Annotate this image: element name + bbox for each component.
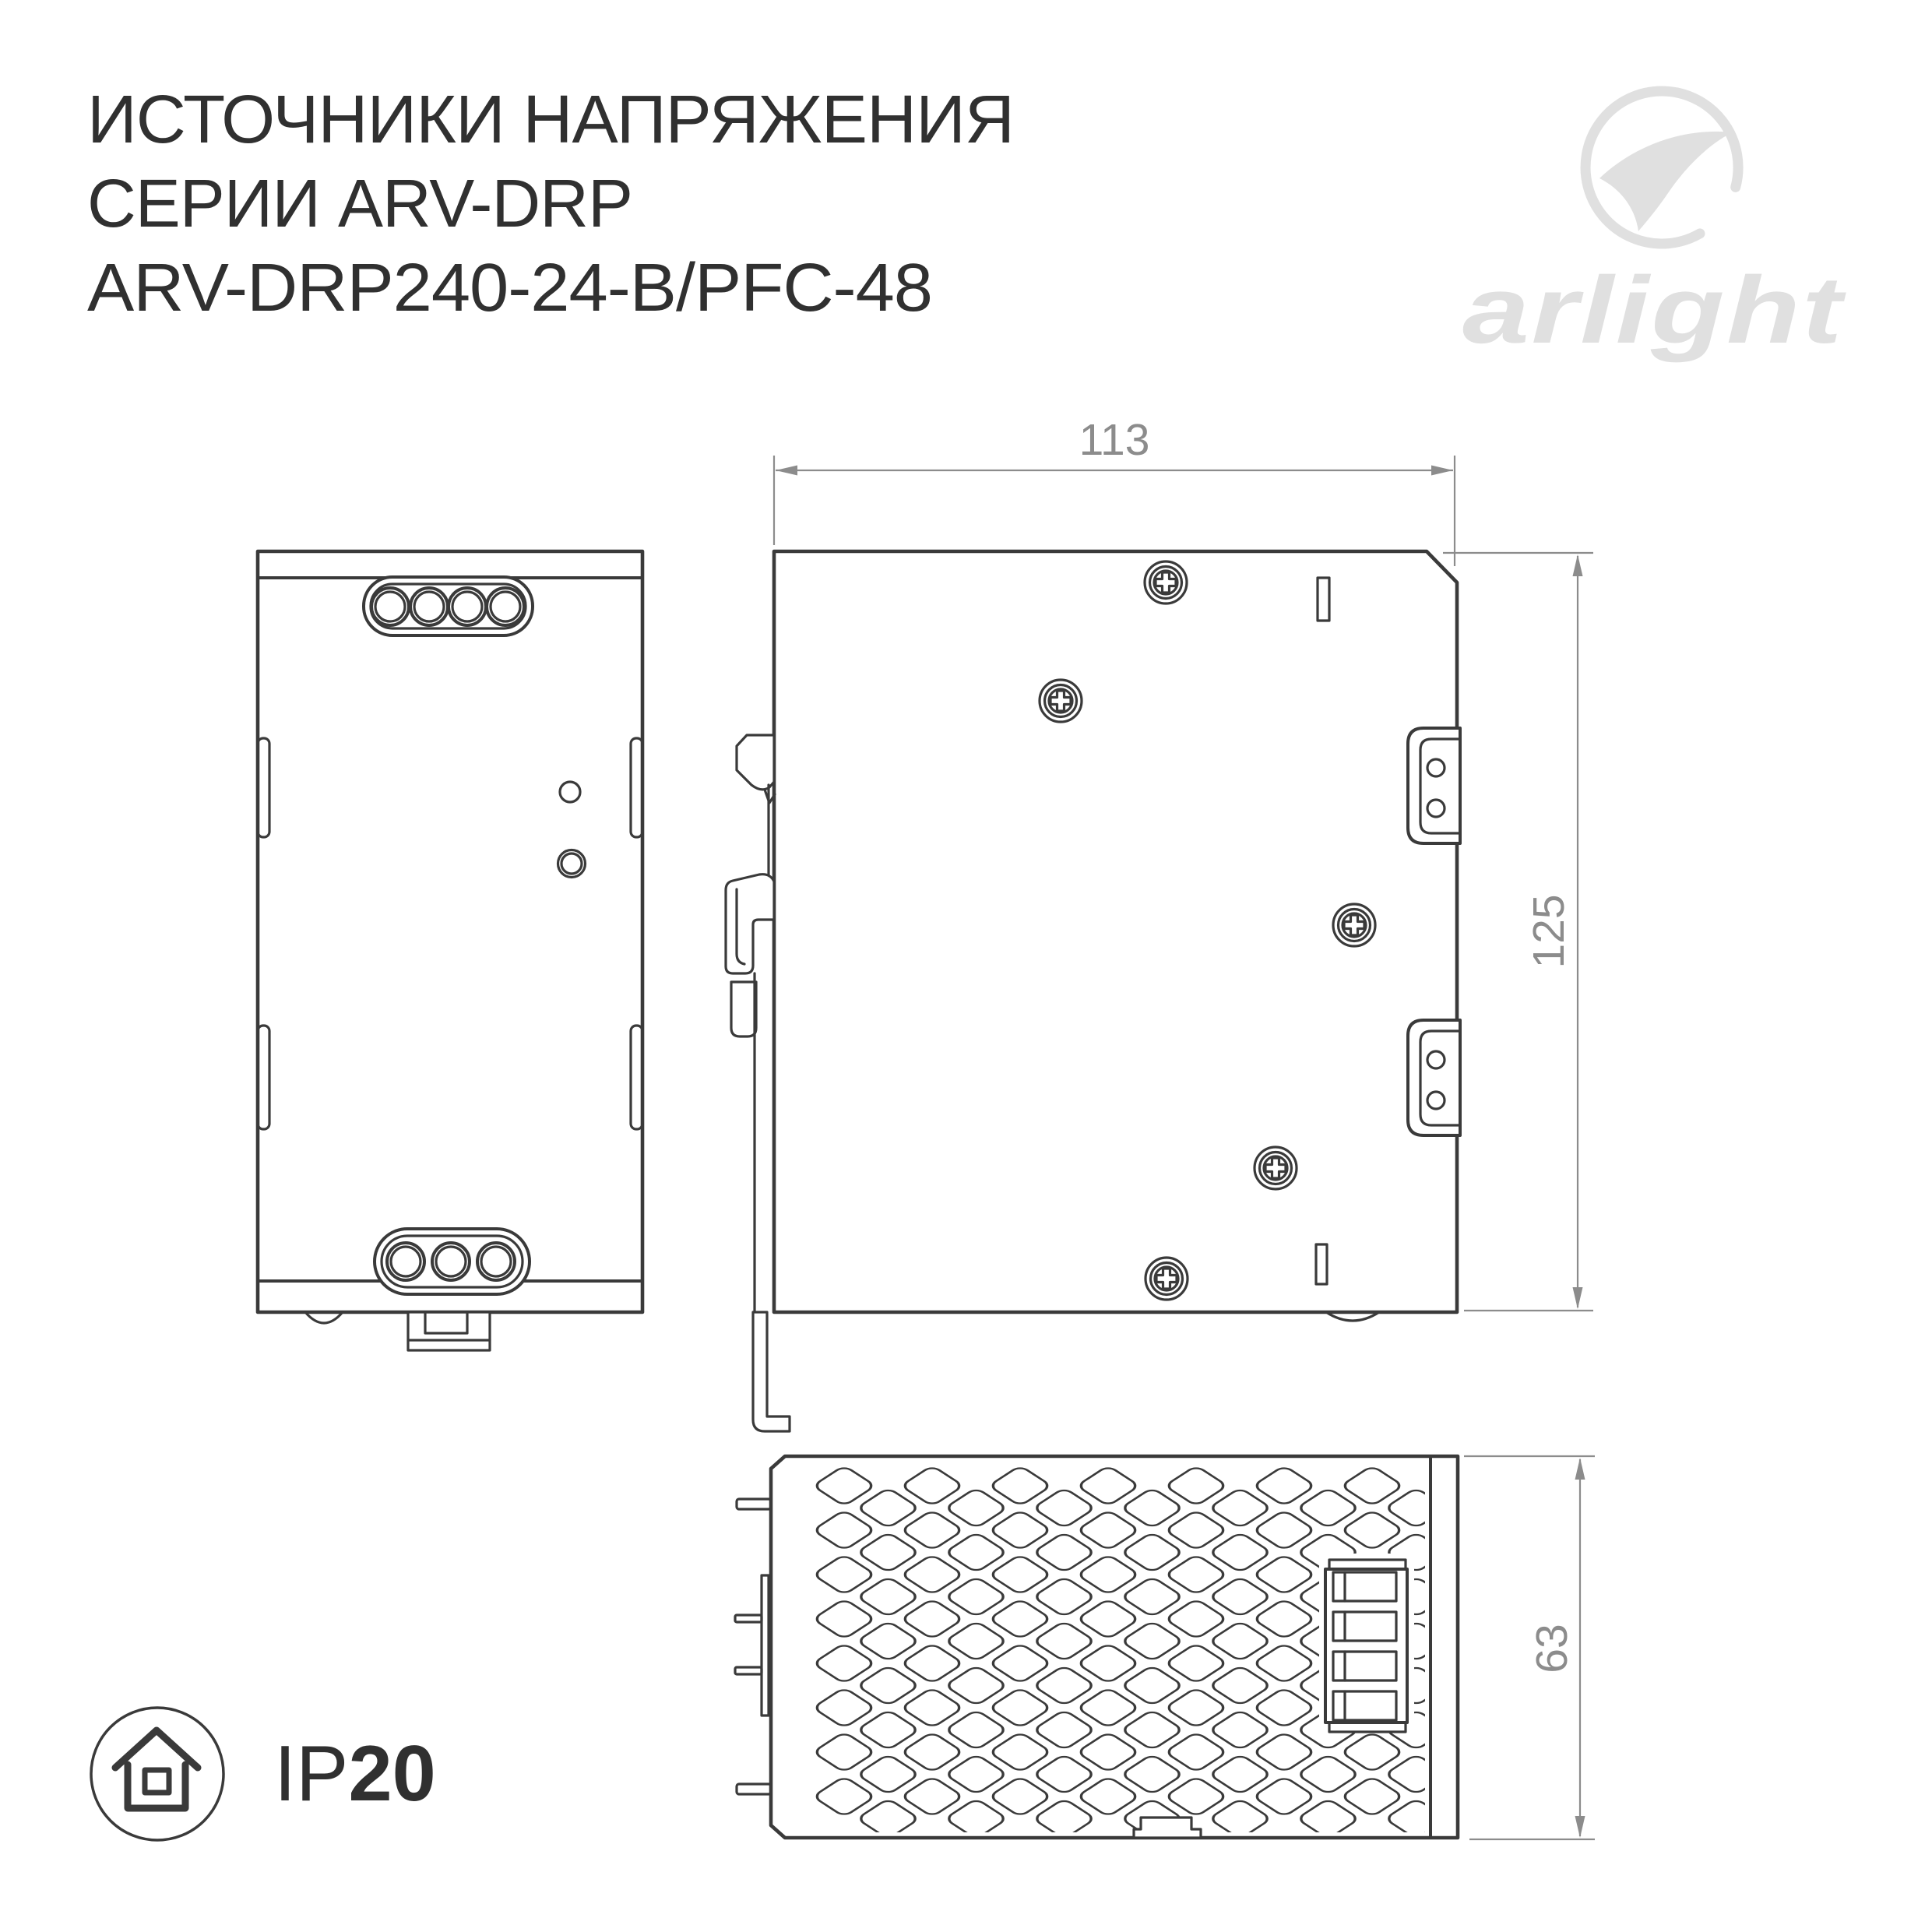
din-latch [726, 875, 774, 973]
ip-rating-badge: IP20 [91, 1708, 436, 1840]
vent-hole [1165, 1776, 1227, 1817]
vent-hole [1033, 1487, 1095, 1528]
vent-hole [989, 1643, 1051, 1684]
vent-hole [1121, 1621, 1183, 1661]
terminal-hole [387, 1243, 515, 1280]
vent-hole [1077, 1554, 1139, 1595]
clip-tab [735, 1615, 762, 1622]
vent-hole [901, 1776, 963, 1817]
vent-hole [1341, 1466, 1403, 1506]
vent-hole [1341, 1776, 1403, 1817]
screw-icon [1255, 1147, 1297, 1189]
vent-hole [945, 1532, 1007, 1572]
vent-hole [1121, 1665, 1183, 1705]
vent-hole [901, 1466, 963, 1506]
arrow-left-icon [776, 466, 797, 476]
vent-hole [1297, 1487, 1359, 1528]
vent-hole [1209, 1709, 1271, 1750]
vent-hole [1253, 1466, 1315, 1506]
vent-hole [1253, 1599, 1315, 1639]
screw-icon [1145, 561, 1187, 604]
datasheet-page: ИСТОЧНИКИ НАПРЯЖЕНИЯ СЕРИИ ARV-DRP ARV-D… [0, 0, 1932, 1932]
vent-hole [945, 1576, 1007, 1617]
vent-hole [1033, 1709, 1095, 1750]
vent-hole [1209, 1754, 1271, 1794]
front-view [258, 551, 642, 1350]
dimension-label-width: 113 [1079, 415, 1150, 465]
vent-hole [1209, 1665, 1271, 1705]
vent-hole [1165, 1510, 1227, 1550]
vent-hole [1253, 1510, 1315, 1550]
vent-hole [989, 1599, 1051, 1639]
vent-hole [989, 1554, 1051, 1595]
bottom-view [735, 1456, 1458, 1839]
vent-hole [1121, 1487, 1183, 1528]
vent-hole [901, 1554, 963, 1595]
vent-hole [901, 1510, 963, 1550]
vent-hole [1297, 1754, 1359, 1794]
terminal-block [1325, 1560, 1407, 1732]
vent-hole [813, 1776, 875, 1817]
dimension-label-depth: 63 [1527, 1624, 1577, 1673]
vent-hole [813, 1732, 875, 1772]
vent-hole [857, 1754, 919, 1794]
clip-tab [737, 1499, 771, 1509]
vent-hole [1209, 1576, 1271, 1617]
arrow-up-icon [1573, 554, 1583, 576]
title-block: ИСТОЧНИКИ НАПРЯЖЕНИЯ СЕРИИ ARV-DRP ARV-D… [87, 82, 1014, 326]
arrow-down-icon [1575, 1816, 1585, 1838]
vent-hole [813, 1554, 875, 1595]
din-hook-lower [753, 1312, 790, 1431]
vent-hole [1033, 1532, 1095, 1572]
ip-rating-text: IP20 [274, 1730, 436, 1818]
vent-hole [1341, 1510, 1403, 1550]
vent-hole [945, 1665, 1007, 1705]
title-line-1: ИСТОЧНИКИ НАПРЯЖЕНИЯ [87, 82, 1014, 157]
vent-hole [1253, 1554, 1315, 1595]
technical-drawing: ИСТОЧНИКИ НАПРЯЖЕНИЯ СЕРИИ ARV-DRP ARV-D… [0, 0, 1932, 1932]
logo-wordmark: arlight [1462, 257, 1846, 363]
vent-hole [1033, 1621, 1095, 1661]
vent-hole [1385, 1487, 1447, 1528]
dimension-height-125: 125 [1443, 553, 1593, 1311]
vent-hole [1033, 1665, 1095, 1705]
vent-hole [945, 1621, 1007, 1661]
vent-hole [1253, 1643, 1315, 1684]
vent-hole [1121, 1754, 1183, 1794]
vent-hole [989, 1466, 1051, 1506]
dimension-width-113: 113 [774, 415, 1455, 566]
clip-tab [737, 1784, 771, 1794]
vent-hole [1253, 1687, 1315, 1728]
clip-rail [762, 1575, 769, 1716]
din-latch-spring [731, 982, 756, 1036]
vent-hole [857, 1576, 919, 1617]
vent-hole [857, 1709, 919, 1750]
vent-hole [1209, 1621, 1271, 1661]
side-view [726, 551, 1460, 1431]
vent-hole [813, 1643, 875, 1684]
vent-hole [1297, 1798, 1359, 1839]
vent-hole [989, 1510, 1051, 1550]
vent-hole [1077, 1776, 1139, 1817]
terminal-connector-3pin [375, 1229, 530, 1294]
ip-prefix: IP [274, 1730, 348, 1818]
vent-hole [901, 1732, 963, 1772]
vent-hole [945, 1709, 1007, 1750]
vent-hole [989, 1776, 1051, 1817]
vent-hole [1121, 1532, 1183, 1572]
vent-hole [857, 1532, 919, 1572]
vent-hole [1077, 1510, 1139, 1550]
vent-hole [1253, 1776, 1315, 1817]
vent-hole [1385, 1754, 1447, 1794]
vent-hole [989, 1687, 1051, 1728]
vent-hole [813, 1687, 875, 1728]
ip-value: 20 [348, 1730, 435, 1818]
arrow-right-icon [1431, 466, 1453, 476]
vent-hole [1165, 1466, 1227, 1506]
mounting-bracket [1408, 1020, 1460, 1135]
din-hook-upper [737, 735, 774, 790]
vent-hole [1121, 1709, 1183, 1750]
terminal-connector-4pin [364, 577, 533, 635]
vent-hole [857, 1665, 919, 1705]
vent-hole [857, 1798, 919, 1839]
vent-hole [989, 1732, 1051, 1772]
vent-hole [857, 1487, 919, 1528]
vent-hole [857, 1621, 919, 1661]
dimension-depth-63: 63 [1464, 1456, 1595, 1839]
vent-hole [1077, 1732, 1139, 1772]
vent-hole [813, 1510, 875, 1550]
vent-hole [1077, 1687, 1139, 1728]
arlight-logo: arlight [1462, 91, 1846, 363]
screw-icon [1333, 904, 1375, 946]
clip-tab [735, 1667, 762, 1674]
screw-icon [1040, 680, 1082, 722]
vent-hole [1253, 1732, 1315, 1772]
vent-hole [813, 1466, 875, 1506]
vent-hole [813, 1599, 875, 1639]
vent-hole [1165, 1687, 1227, 1728]
title-line-3: ARV-DRP240-24-B/PFC-48 [87, 250, 932, 326]
indoor-use-icon [91, 1708, 223, 1840]
vent-hole [901, 1599, 963, 1639]
vent-hole [901, 1643, 963, 1684]
vent-hole [1209, 1487, 1271, 1528]
vent-hole [945, 1798, 1007, 1839]
arrow-down-icon [1573, 1287, 1583, 1309]
din-foot-tab [408, 1312, 490, 1350]
logo-swoosh [1599, 132, 1733, 231]
vent-hole [1165, 1732, 1227, 1772]
vent-hole [901, 1687, 963, 1728]
vent-hole [1033, 1798, 1095, 1839]
vent-hole [1033, 1754, 1095, 1794]
vent-hole [1033, 1576, 1095, 1617]
vent-hole [1209, 1798, 1271, 1839]
din-clip-bottom-view [735, 1499, 771, 1794]
vent-hole [1077, 1643, 1139, 1684]
vent-hole [945, 1754, 1007, 1794]
front-outline [258, 551, 642, 1312]
vent-hole [945, 1487, 1007, 1528]
dimension-label-height: 125 [1524, 894, 1574, 968]
vent-hole [1165, 1643, 1227, 1684]
vent-hole [1385, 1798, 1447, 1839]
vent-hole [1077, 1466, 1139, 1506]
vent-hole [1077, 1599, 1139, 1639]
vent-hole [1121, 1576, 1183, 1617]
din-foot-tab [1134, 1818, 1201, 1838]
vent-hole [1165, 1554, 1227, 1595]
vent-hole [1165, 1599, 1227, 1639]
mounting-bracket [1408, 728, 1460, 843]
title-line-2: СЕРИИ ARV-DRP [87, 166, 632, 241]
screw-icon [1145, 1258, 1188, 1300]
arrow-up-icon [1575, 1458, 1585, 1480]
vent-hole [1341, 1732, 1403, 1772]
vent-hole [1209, 1532, 1271, 1572]
